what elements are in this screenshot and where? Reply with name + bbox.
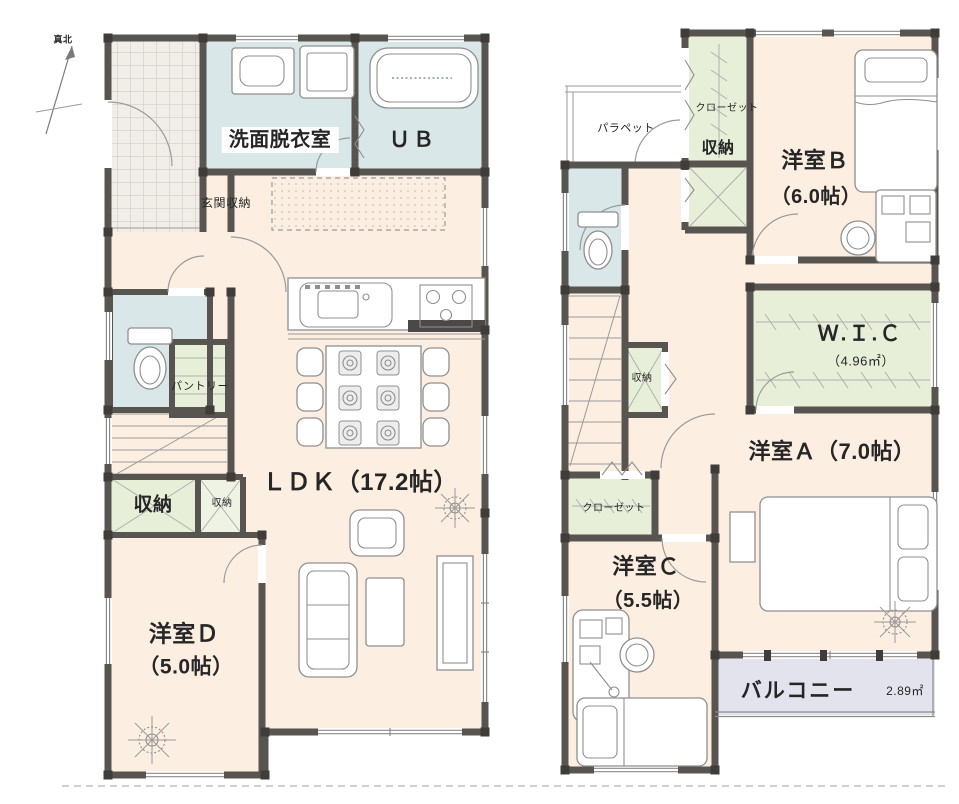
label-closet-upper: クローゼット	[696, 104, 759, 114]
washroom-fixtures	[232, 46, 354, 98]
north-arrow	[36, 46, 82, 134]
room-toilet-2f	[568, 168, 625, 288]
label-storage-upper: 収納	[701, 141, 734, 157]
bathtub	[370, 48, 478, 108]
label-parapet: パラペット	[597, 124, 655, 135]
bed-room-b	[855, 50, 937, 192]
floor2-plan	[561, 29, 940, 775]
bed-room-c	[577, 698, 707, 766]
label-room-a: 洋室Ａ（7.0帖）	[748, 441, 915, 463]
label-room-d-size: （5.0帖）	[138, 657, 233, 678]
floorplan-page: 真北 洗面脱衣室 ＵＢ 玄関収納 パントリー 収納 収納 ＬＤＫ（17.2帖） …	[0, 0, 959, 804]
label-pantry: パントリー	[171, 382, 229, 393]
label-entrance-storage: 玄関収納	[201, 197, 251, 209]
north-label: 真北	[53, 36, 72, 45]
label-room-b-size: （6.0帖）	[771, 187, 862, 207]
label-closet-lower: クローゼット	[583, 504, 646, 514]
label-room-c: 洋室Ｃ	[612, 556, 680, 578]
label-balcony: バルコニー	[741, 681, 856, 702]
dining-set	[297, 346, 449, 448]
plant-room-d	[128, 716, 176, 764]
label-storage-hall: 収納	[632, 374, 653, 384]
plant-room-a	[874, 601, 916, 643]
label-washroom: 洗面脱衣室	[222, 127, 339, 153]
label-wic-size: （4.96㎡）	[827, 355, 895, 368]
label-storage-small: 収納	[212, 499, 233, 509]
label-balcony-area: 2.89㎡	[886, 685, 924, 697]
label-room-d: 洋室Ｄ	[149, 623, 220, 646]
label-room-b: 洋室Ｂ	[781, 150, 849, 172]
bed-room-a	[730, 497, 937, 611]
label-ldk: ＬＤＫ（17.2帖）	[262, 471, 458, 495]
label-unit-bath: ＵＢ	[389, 130, 437, 151]
room-pantry	[172, 342, 228, 415]
label-wic: Ｗ.Ｉ.Ｃ	[818, 324, 903, 345]
room-wic	[752, 289, 933, 408]
label-storage-large: 収納	[133, 496, 172, 515]
kitchen-counter	[288, 278, 485, 339]
label-room-c-size: （5.5帖）	[603, 591, 694, 611]
